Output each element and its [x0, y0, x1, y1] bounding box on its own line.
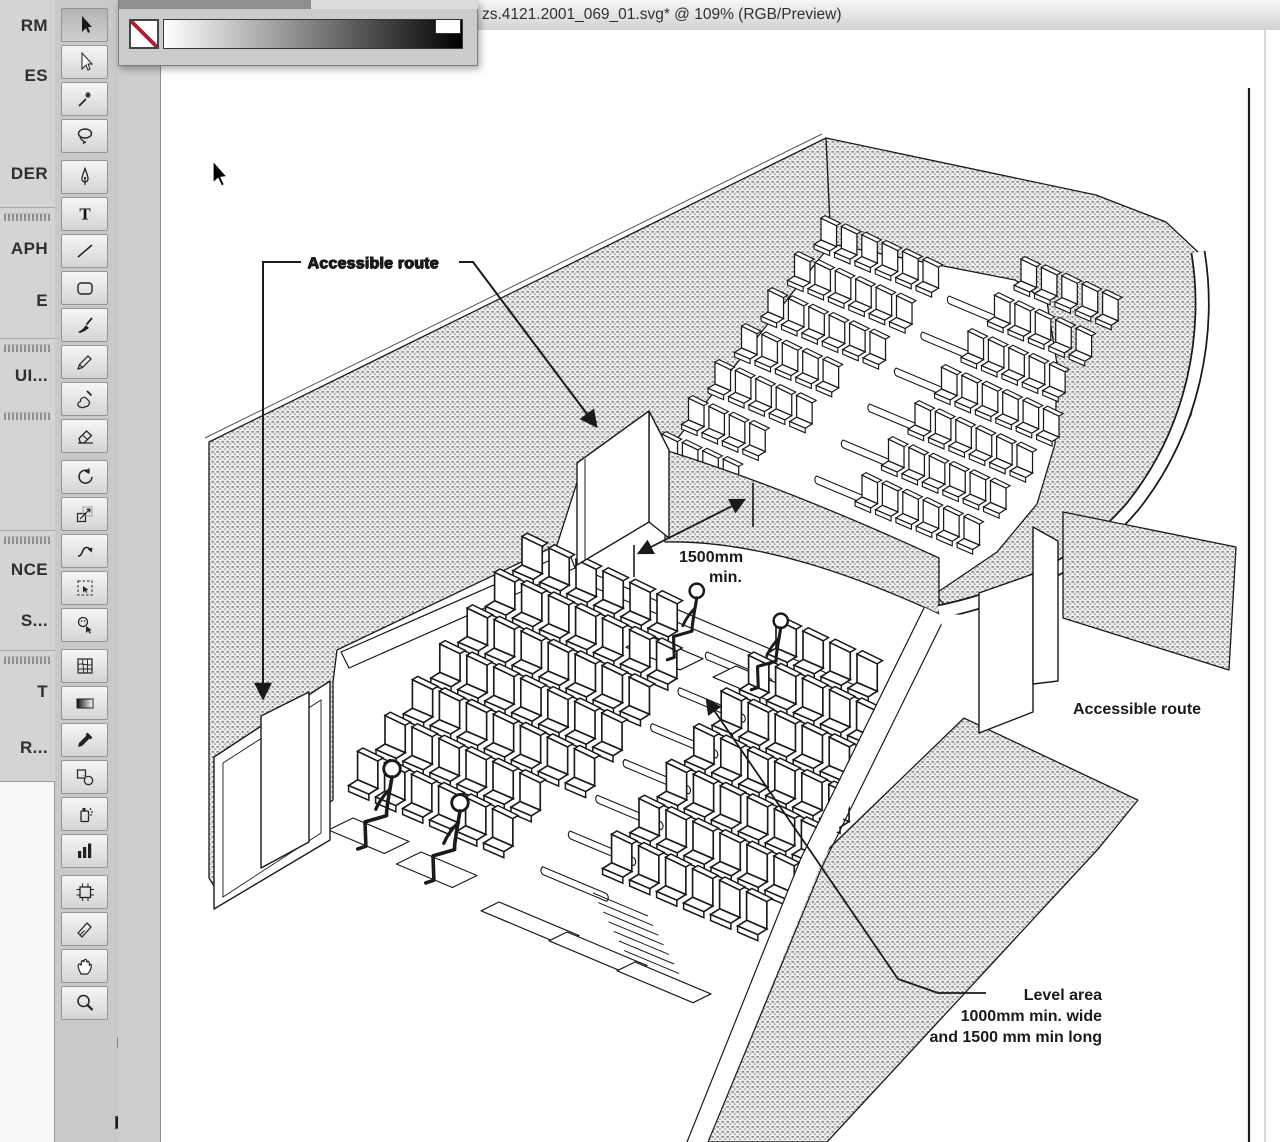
palette-group-separator: [0, 530, 55, 531]
seat: [929, 409, 955, 449]
seat: [963, 470, 989, 510]
seat: [863, 329, 889, 369]
palette-header[interactable]: [119, 0, 311, 9]
seat: [769, 385, 795, 425]
color-palette[interactable]: [118, 0, 478, 66]
mouse-cursor-icon: [213, 161, 227, 186]
seat: [990, 434, 1016, 474]
seat: [684, 866, 719, 918]
palette-tab-fragment[interactable]: NCE: [11, 560, 48, 580]
seat: [908, 401, 934, 441]
palette-tab-fragment[interactable]: S...: [21, 611, 48, 631]
seat: [729, 368, 755, 408]
seat: [896, 489, 922, 529]
lasso-tool[interactable]: [61, 119, 108, 153]
pen-tool[interactable]: [61, 160, 108, 194]
column-graph-icon: [74, 840, 96, 862]
pencil-icon: [74, 351, 96, 373]
free-transform-tool[interactable]: [61, 571, 108, 605]
none-swatch[interactable]: [129, 19, 159, 49]
artboard-tool[interactable]: [61, 875, 108, 909]
seat: [890, 293, 916, 333]
seat: [1028, 309, 1054, 349]
free-transform-icon: [74, 577, 96, 599]
paintbrush-tool[interactable]: [61, 308, 108, 342]
seat: [1016, 398, 1042, 438]
slice-tool[interactable]: [61, 912, 108, 946]
selection-icon: [74, 14, 96, 36]
blob-brush-icon: [74, 388, 96, 410]
seat: [603, 831, 638, 883]
right-doorway: [979, 574, 1033, 733]
seat: [657, 854, 692, 906]
seat: [937, 506, 963, 546]
palette-tab-fragment[interactable]: RM: [21, 16, 48, 36]
blend-tool[interactable]: [61, 760, 108, 794]
tools-panel: T: [55, 0, 119, 1142]
seat: [711, 877, 746, 929]
seat: [1022, 354, 1048, 394]
selection-tool[interactable]: [61, 8, 108, 42]
mesh-tool[interactable]: [61, 649, 108, 683]
seat: [916, 498, 942, 538]
palette-panel-edge: [0, 781, 55, 1142]
level-area-label-3: and 1500 mm min long: [930, 1029, 1102, 1046]
palette-drag-handle[interactable]: [4, 536, 50, 544]
seat: [922, 453, 948, 493]
rectangle-tool[interactable]: [61, 271, 108, 305]
seat: [876, 481, 902, 521]
blend-icon: [74, 766, 96, 788]
eyedropper-icon: [74, 729, 96, 751]
seat: [722, 412, 748, 452]
palette-group-separator: [0, 338, 55, 339]
palette-group-separator: [0, 650, 55, 651]
rotate-tool[interactable]: [61, 460, 108, 494]
illustrator-app: RMESDERAPHEUI...NCES...TR... T zs.4121.2…: [0, 0, 1280, 1142]
seat: [916, 257, 942, 297]
seat: [755, 332, 781, 372]
seat: [796, 349, 822, 389]
level-area-platform: [328, 818, 409, 854]
tint-ramp[interactable]: [163, 19, 463, 49]
seat: [630, 843, 665, 895]
seat: [955, 373, 981, 413]
seat: [935, 365, 961, 405]
document-title: zs.4121.2001_069_01.svg* @ 109% (RGB/Pre…: [482, 0, 842, 29]
seat: [1002, 345, 1028, 385]
seat: [749, 376, 775, 416]
palette-drag-handle[interactable]: [4, 213, 50, 221]
eyedropper-tool[interactable]: [61, 723, 108, 757]
seat: [816, 357, 842, 397]
hand-tool[interactable]: [61, 949, 108, 983]
lower-door-leaf: [261, 692, 309, 868]
seat: [1008, 301, 1034, 341]
gradient-tool[interactable]: [61, 686, 108, 720]
palette-drag-handle[interactable]: [4, 656, 50, 664]
seat: [996, 390, 1022, 430]
docked-palette-strip: RMESDERAPHEUI...NCES...TR...: [0, 0, 56, 1142]
palette-tab-fragment[interactable]: T: [37, 682, 48, 702]
right-door-leaf: [1033, 527, 1058, 684]
seat: [828, 268, 854, 308]
blob-brush-tool[interactable]: [61, 382, 108, 416]
seat: [802, 304, 828, 344]
magic-wand-icon: [74, 88, 96, 110]
pencil-tool[interactable]: [61, 345, 108, 379]
palette-tab-fragment[interactable]: R...: [20, 738, 48, 758]
line-segment-tool[interactable]: [61, 234, 108, 268]
level-area-platform: [396, 852, 477, 888]
palette-drag-handle[interactable]: [4, 344, 50, 352]
seat: [738, 889, 773, 941]
artboard-icon: [74, 881, 96, 903]
gradient-icon: [74, 692, 96, 714]
seat: [975, 381, 1001, 421]
seat: [949, 417, 975, 457]
scale-icon: [74, 503, 96, 525]
palette-header-right: [311, 0, 478, 9]
seat: [743, 421, 769, 461]
seat: [961, 329, 987, 369]
palette-tab-fragment[interactable]: DER: [11, 164, 48, 184]
palette-drag-handle[interactable]: [4, 412, 50, 420]
seat: [902, 445, 928, 485]
seat: [565, 745, 600, 797]
pen-icon: [74, 166, 96, 188]
type-icon: T: [74, 203, 96, 225]
palette-tab-fragment[interactable]: E: [36, 291, 48, 311]
eraser-tool[interactable]: [61, 419, 108, 453]
seat: [969, 426, 995, 466]
rectangle-icon: [74, 277, 96, 299]
seat: [982, 337, 1008, 377]
slice-icon: [74, 918, 96, 940]
direct-selection-tool[interactable]: [61, 45, 108, 79]
seat: [349, 748, 384, 800]
seat: [869, 285, 895, 325]
palette-tab-fragment[interactable]: UI...: [15, 366, 48, 386]
palette-group-separator: [0, 207, 55, 208]
live-paint-selection-icon: [74, 614, 96, 636]
dim-1500-label-2: min.: [709, 569, 742, 586]
seat: [790, 393, 816, 433]
pasteboard: Accessible route 1500mm min. Accessible …: [118, 30, 1280, 1142]
eraser-icon: [74, 425, 96, 447]
seat: [403, 771, 438, 823]
type-tool[interactable]: T: [61, 197, 108, 231]
seat: [1010, 442, 1036, 482]
rotate-icon: [74, 466, 96, 488]
dim-1500-label: 1500mm: [679, 549, 743, 566]
zoom-tool[interactable]: [61, 986, 108, 1020]
seat: [484, 806, 518, 858]
level-area-label-2: 1000mm min. wide: [961, 1008, 1102, 1025]
seat: [957, 514, 983, 554]
seat: [984, 478, 1010, 518]
paintbrush-icon: [74, 314, 96, 336]
svg-text:T: T: [79, 205, 91, 224]
seat: [882, 437, 908, 477]
symbol-sprayer-tool[interactable]: [61, 797, 108, 831]
warp-icon: [74, 540, 96, 562]
seat: [849, 277, 875, 317]
artwork-canvas[interactable]: Accessible route 1500mm min. Accessible …: [161, 30, 1280, 1142]
magic-wand-tool[interactable]: [61, 82, 108, 116]
zoom-icon: [74, 992, 96, 1014]
line-segment-icon: [74, 240, 96, 262]
direct-selection-icon: [74, 51, 96, 73]
warp-tool[interactable]: [61, 534, 108, 568]
white-swatch[interactable]: [435, 19, 461, 34]
hand-icon: [74, 955, 96, 977]
seat: [943, 462, 969, 502]
seat: [775, 340, 801, 380]
accessible-route-label-right: Accessible route: [1073, 701, 1201, 718]
mesh-icon: [74, 655, 96, 677]
symbol-sprayer-icon: [74, 803, 96, 825]
accessible-route-label-top: Accessible route: [307, 255, 438, 272]
scale-tool[interactable]: [61, 497, 108, 531]
column-graph-tool[interactable]: [61, 834, 108, 868]
palette-tab-fragment[interactable]: APH: [11, 239, 48, 259]
live-paint-selection-tool[interactable]: [61, 608, 108, 642]
artboard[interactable]: Accessible route 1500mm min. Accessible …: [160, 30, 1280, 1142]
seat: [855, 473, 881, 513]
level-area-platform: [617, 962, 711, 1003]
tier-riser-face: [665, 450, 939, 614]
seat: [988, 293, 1014, 333]
palette-tab-fragment[interactable]: ES: [25, 66, 48, 86]
lasso-icon: [74, 125, 96, 147]
seat: [702, 404, 728, 444]
seat: [822, 313, 848, 353]
seat: [843, 321, 869, 361]
level-area-label-1: Level area: [1024, 987, 1102, 1004]
